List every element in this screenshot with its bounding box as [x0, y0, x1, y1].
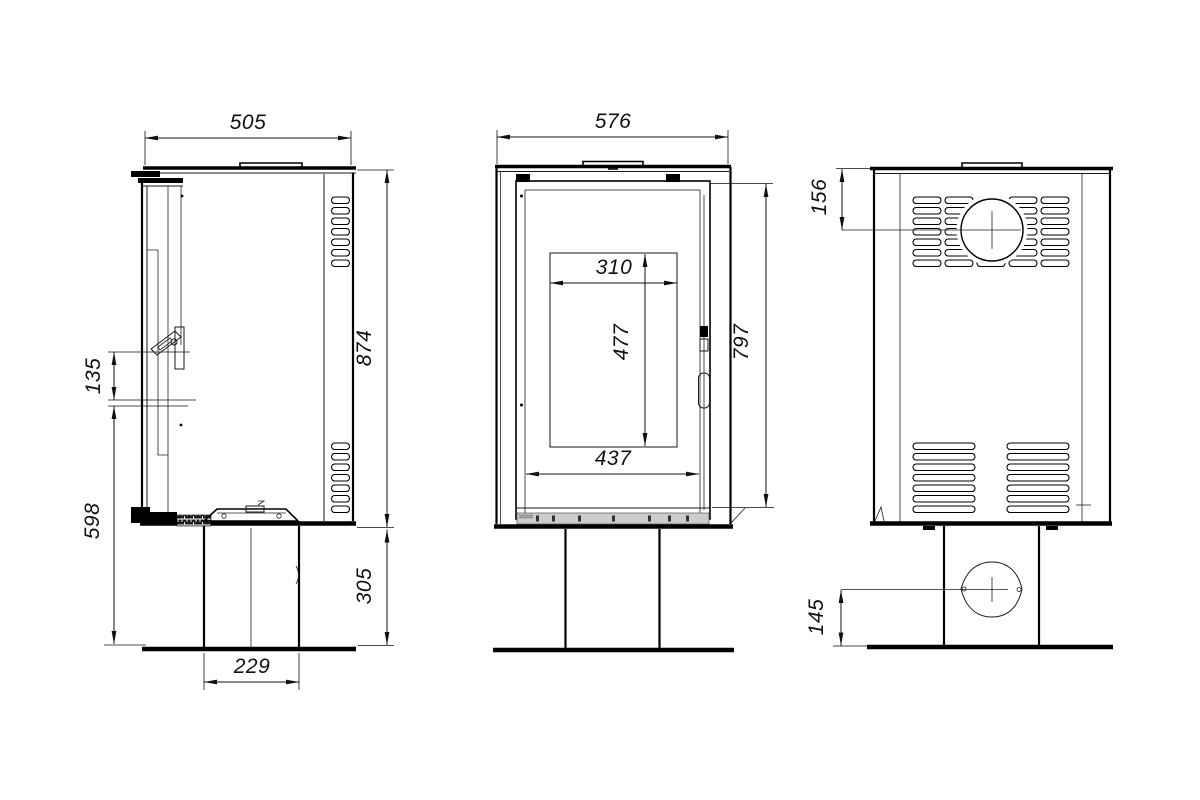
side-door-pivot: [131, 171, 160, 177]
technical-drawing-canvas: 505 874 305 135 598 229: [0, 0, 1200, 800]
dim-side-handle-span-label: 135: [82, 358, 105, 395]
dim-side-pedestal-depth-label: 229: [233, 655, 271, 678]
dim-side-top-depth-label: 505: [230, 111, 267, 134]
dim-rear-inlet-center-label: 145: [805, 599, 828, 636]
side-vent-grille-bottom: [332, 443, 350, 513]
dim-front-body-height-label: 797: [730, 323, 753, 360]
dim-front-glass-width-label: 310: [596, 256, 633, 279]
side-vent-grille-top: [332, 197, 350, 267]
side-ashlip-block: [131, 507, 150, 523]
dim-front-top-width-label: 576: [595, 110, 632, 133]
rear-vent-grille-bottom-right: [1007, 443, 1069, 513]
dim-side-handle-to-floor-label: 598: [81, 503, 104, 540]
dim-front-door-inner-width-label: 437: [595, 447, 632, 470]
dim-side-body-height-label: 874: [353, 330, 376, 367]
dim-side-pedestal-height-label: 305: [353, 568, 376, 605]
rear-vent-grille-bottom-left: [913, 443, 975, 513]
front-base-strip: [517, 513, 709, 524]
dim-rear-flue-center-label: 156: [808, 179, 831, 216]
dim-front-glass-height-label: 477: [610, 323, 633, 360]
stove-dimension-drawing: 505 874 305 135 598 229: [0, 0, 1200, 800]
